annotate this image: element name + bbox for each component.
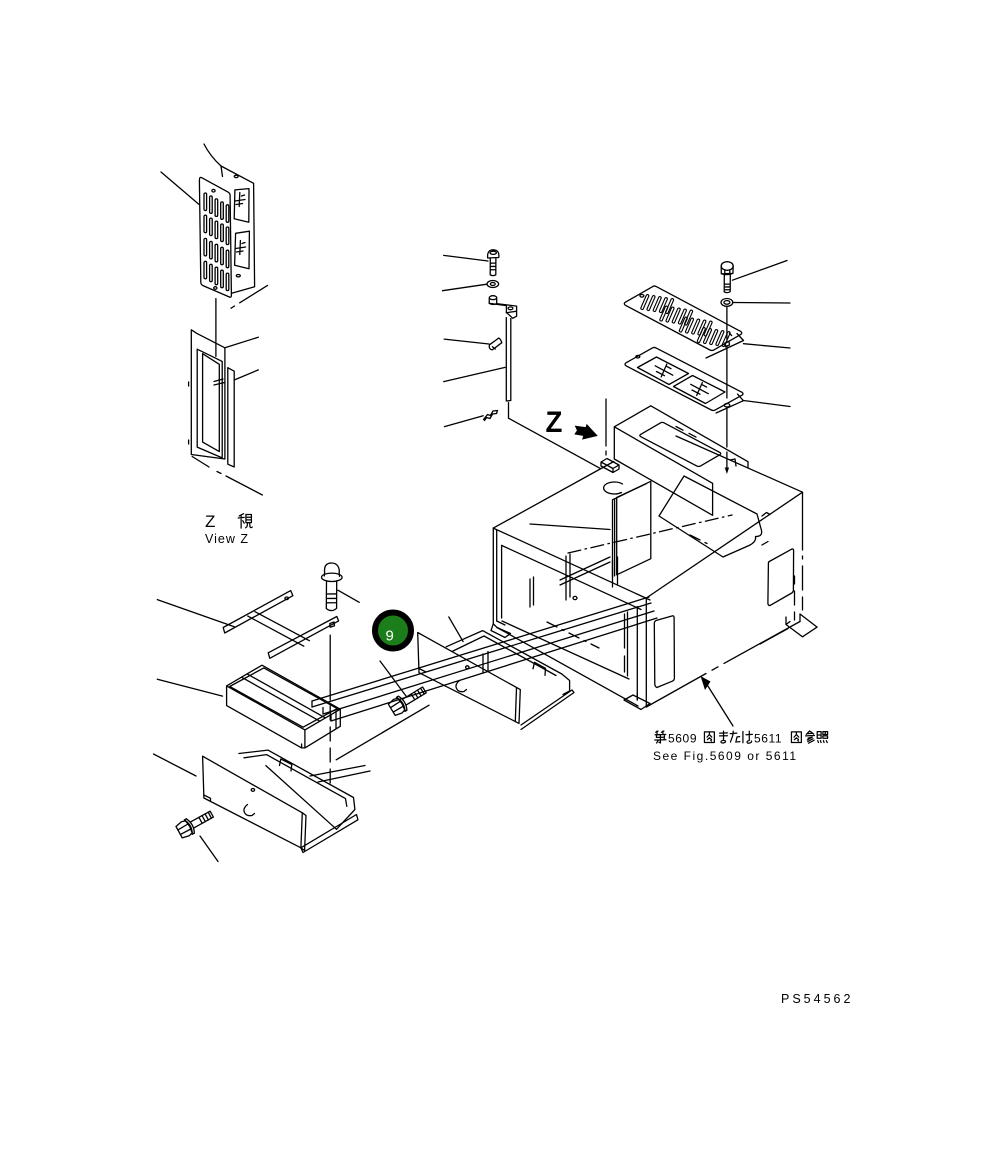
svg-text:Z: Z: [546, 406, 563, 439]
svg-text:5611: 5611: [754, 732, 782, 746]
svg-text:View Z: View Z: [205, 532, 249, 546]
svg-text:5609: 5609: [668, 732, 697, 746]
svg-text:9: 9: [386, 628, 394, 645]
svg-text:Z: Z: [205, 512, 215, 531]
svg-text:See Fig.5609 or 5611: See Fig.5609 or 5611: [653, 749, 798, 763]
svg-text:PS54562: PS54562: [781, 992, 853, 1006]
